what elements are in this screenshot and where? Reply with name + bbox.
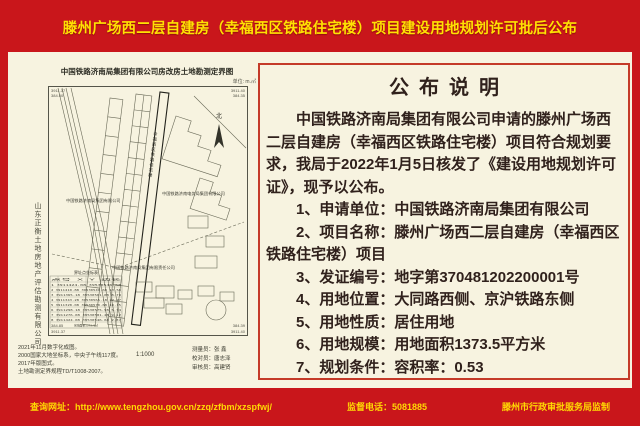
table-row: 1 3911424.08 39530546.68 <box>51 283 122 287</box>
announcement-paragraph: 中国铁路济南局集团有限公司申请的滕州广场西二层自建房（幸福西区铁路住宅楼）项目符… <box>266 109 622 199</box>
announcement-item-land-use: 5、用地性质：居住用地 <box>266 312 622 335</box>
coord-bottom-right-1: 384.39 <box>233 323 246 328</box>
footer-band: 查询网址：http://www.tengzhou.gov.cn/zzq/zfbm… <box>0 394 640 418</box>
coord-top-right-2: 384.35 <box>233 93 246 98</box>
supervision-phone-text: 监督电话：5081885 <box>347 400 427 413</box>
announcement-item-permit-number: 3、发证编号：地字第370481202200001号 <box>266 267 622 290</box>
announcement-title: 公布说明 <box>260 71 628 100</box>
announcement-item-location: 4、用地位置：大同路西侧、京沪铁路东侧 <box>266 289 622 312</box>
coord-bottom-right-2: 3911.40 <box>231 329 246 334</box>
map-unit-label: 单位: m.㎡ <box>233 78 256 85</box>
content-panel: 中国铁路济南局集团有限公司房改房土地勘测定界图 单位: m.㎡ 山东正衡土地房地… <box>8 52 632 388</box>
producer-text: 滕州市行政审批服务局监制 <box>502 400 610 413</box>
announcement-item-scale: 6、用地规模：用地面积1373.5平方米 <box>266 334 622 357</box>
table-row: 6 3911298.18 39530575.98 5.74 <box>51 308 121 312</box>
map-title: 中国铁路济南局集团有限公司房改房土地勘测定界图 <box>36 66 258 77</box>
parcel-label-1: 中国铁路济南局集团有限公司 <box>66 197 120 204</box>
survey-map-block: 中国铁路济南局集团有限公司房改房土地勘测定界图 单位: m.㎡ 山东正衡土地房地… <box>8 52 258 388</box>
table-row: 8 3911424.08 39530546.68 2.37 <box>51 318 121 322</box>
announcement-item-project-name: 2、项目名称：滕州广场西二层自建房（幸福西区铁路住宅楼）项目 <box>266 222 622 267</box>
table-footer-area: 宗地面积1373.5㎡ <box>74 324 98 328</box>
header-band: 滕州广场西二层自建房（幸福西区铁路住宅楼）项目建设用地规划许可批后公布 <box>0 0 640 52</box>
page-title: 滕州广场西二层自建房（幸福西区铁路住宅楼）项目建设用地规划许可批后公布 <box>0 0 640 38</box>
map-notes: 2021年11月数字化成图。 2000国家大地坐标系，中央子午线117度。 20… <box>18 344 122 376</box>
surveyor-line: 测量员：张 鑫 <box>192 346 231 355</box>
parcel-label-2: 中国铁路济南电务局集团有限公司 <box>162 190 225 197</box>
surveyor-company-vertical-text: 山东正衡土地房地产评估勘测有限公司 <box>32 202 42 347</box>
announcement-panel: 公布说明 中国铁路济南局集团有限公司申请的滕州广场西二层自建房（幸福西区铁路住宅… <box>258 63 630 380</box>
survey-map-drawing: 3911.37 384.50 3911.40 384.35 384.85 391… <box>48 86 248 336</box>
reviewer-line: 审核员：高建贤 <box>192 364 231 373</box>
coord-bottom-left-1: 384.85 <box>51 323 64 328</box>
map-note-line: 2000国家大地坐标系，中央子午线117度。 <box>18 352 122 360</box>
map-scale: 1:1000 <box>136 352 154 358</box>
boundary-point-table: 界址点坐标表 点号 X Y 边长 1 3911424.08 3953 <box>50 269 122 328</box>
parcel-label-3: 中国铁路济南局集团有限责任公司 <box>112 264 175 271</box>
query-website-text: 查询网址：http://www.tengzhou.gov.cn/zzq/zfbm… <box>30 400 272 413</box>
map-staff-signatures: 测量员：张 鑫 校对员：唐志泽 审核员：高建贤 <box>192 346 231 373</box>
coord-bottom-left-2: 3911.37 <box>51 329 66 334</box>
announcement-item-conditions: 7、规划条件：容积率：0.53 <box>266 357 622 380</box>
parcel-owner-labels: 中国铁路济南局集团有限公司 中国铁路济南电务局集团有限公司 中国铁路济南局集团有… <box>66 190 225 271</box>
boundary-table-title: 界址点坐标表 <box>74 269 98 275</box>
map-note-line: 2017年版图式。 <box>18 360 122 368</box>
table-row: 7 3911276.08 39530581.28 9.12 <box>51 313 121 317</box>
table-row: 2 3911410.88 39530549.68 13.58 <box>51 288 121 292</box>
table-row: 5 3911320.08 39530570.68 10.15 <box>51 303 121 307</box>
table-row: 4 3911343.28 39530565.18 22.27 <box>51 298 121 302</box>
table-row: 3 3911365.18 39530561.08 8.79 <box>51 293 121 297</box>
subject-parcel-label: 幸福西区铁路住宅楼 <box>147 131 159 179</box>
table-header-row: 点号 X Y 边长 <box>51 277 122 281</box>
announcement-body: 中国铁路济南局集团有限公司申请的滕州广场西二层自建房（幸福西区铁路住宅楼）项目符… <box>266 109 622 379</box>
map-note-line: 土地勘测定界规程TD/T1008-2007。 <box>18 368 122 376</box>
checker-line: 校对员：唐志泽 <box>192 355 231 364</box>
north-arrow-shape <box>214 124 224 148</box>
coord-top-left-2: 384.50 <box>51 93 64 98</box>
announcement-item-applicant: 1、申请单位：中国铁路济南局集团有限公司 <box>266 199 622 222</box>
subject-parcel: 幸福西区铁路住宅楼 <box>129 92 169 326</box>
map-note-line: 2021年11月数字化成图。 <box>18 344 122 352</box>
announcement-poster: 滕州广场西二层自建房（幸福西区铁路住宅楼）项目建设用地规划许可批后公布 中国铁路… <box>0 0 640 426</box>
